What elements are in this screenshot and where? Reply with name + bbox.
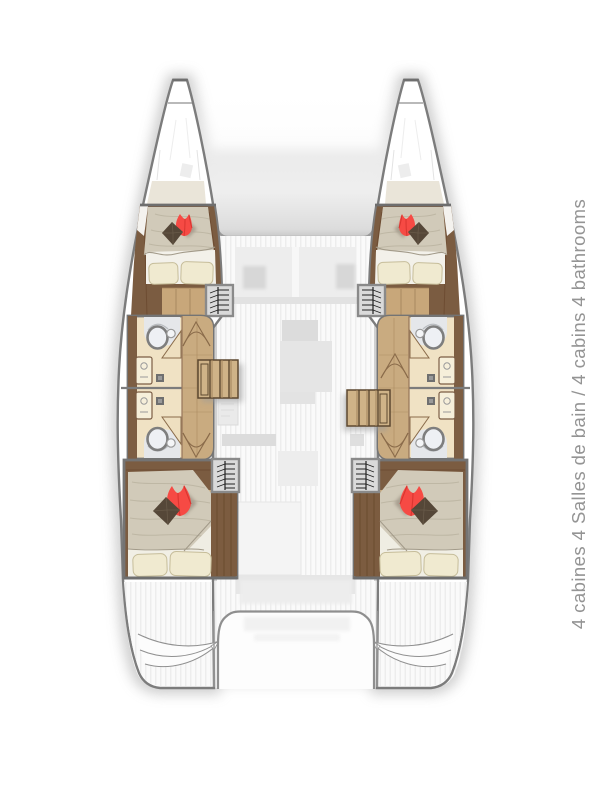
svg-text:4 cabines 4 Salles de bain / 4: 4 cabines 4 Salles de bain / 4 cabins 4 … (568, 199, 589, 629)
